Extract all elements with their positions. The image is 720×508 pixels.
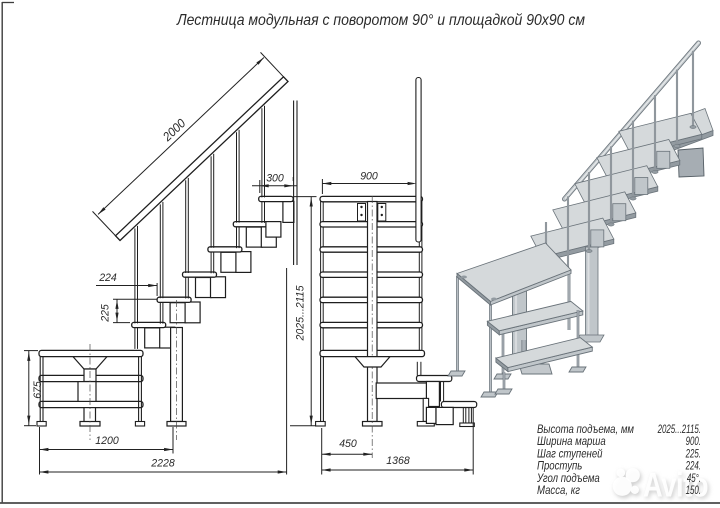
svg-text:2025...2115: 2025...2115 — [294, 285, 306, 342]
svg-text:150.: 150. — [686, 485, 701, 498]
svg-text:900.: 900. — [686, 436, 701, 449]
svg-text:224.: 224. — [685, 460, 701, 473]
svg-text:45°.: 45°. — [687, 472, 701, 485]
svg-text:300: 300 — [266, 172, 284, 184]
svg-text:900: 900 — [360, 170, 378, 182]
svg-text:2228: 2228 — [150, 457, 175, 469]
svg-text:450: 450 — [339, 438, 357, 450]
svg-text:1200: 1200 — [95, 435, 119, 447]
svg-text:2025...2115.: 2025...2115. — [657, 424, 701, 437]
svg-text:675: 675 — [32, 380, 44, 398]
svg-text:1368: 1368 — [386, 455, 410, 467]
svg-text:224: 224 — [98, 272, 117, 284]
svg-text:Масса, кг: Масса, кг — [537, 484, 581, 497]
svg-text:225: 225 — [99, 303, 111, 322]
svg-text:225.: 225. — [685, 448, 701, 461]
svg-text:Лестница модульная с поворотом: Лестница модульная с поворотом 90° и пло… — [176, 12, 585, 29]
